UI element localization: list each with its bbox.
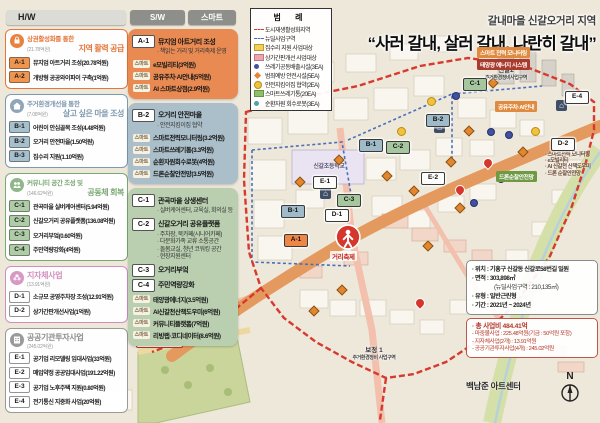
smart-item: 스마트스마트전력모니터링(3.2억원) bbox=[132, 133, 234, 142]
map-callout-2: 드론순찰안전망 bbox=[496, 171, 537, 183]
sw-project-item: C-2신갈오거리 공유플랫폼 bbox=[132, 218, 234, 231]
project-code-chip: B-1 bbox=[9, 121, 30, 133]
legend-item: 도시재생활성화지역 bbox=[254, 25, 328, 34]
dot-yellow-swatch-icon bbox=[254, 81, 265, 89]
section-title: 상권활성화를 통한 bbox=[27, 33, 124, 43]
dot-blue-swatch-icon bbox=[254, 64, 265, 69]
legend-item: 스마트쓰레기통(20EA) bbox=[254, 89, 328, 98]
smart-label: 공유주차·AI안내(5억원) bbox=[153, 72, 211, 81]
project-code-chip: C-4 bbox=[9, 244, 30, 256]
line-red-swatch-icon bbox=[254, 29, 265, 30]
legend-label: 뉴딜사업구역 bbox=[265, 34, 295, 43]
district-name: 보정 1 bbox=[338, 344, 410, 354]
info-line: · 면적 : 303,898㎡ bbox=[472, 274, 592, 283]
smart-label: 순환자원회수로봇(4억원) bbox=[153, 157, 214, 166]
smart-label: 리빙랩·코디네이터(8.6억원) bbox=[153, 331, 221, 340]
legend-item: 쓰레기공동배출시설(3EA) bbox=[254, 62, 328, 71]
smart-note-line: · 드론 순찰안전망 bbox=[545, 171, 591, 177]
section-header: 상권활성화를 통한(21.78억원)지역 활력 공급 bbox=[9, 33, 124, 54]
project-code-chip: E-1 bbox=[9, 352, 30, 364]
section-budget: (13.91억원) bbox=[27, 281, 50, 288]
sw-project-item: A-1뮤지엄 아트거리 조성 bbox=[132, 35, 234, 48]
legend-item: 안전지킴이집 협약(2EA) bbox=[254, 80, 328, 89]
legend-item: 순환자원 회수로봇(3EA) bbox=[254, 99, 328, 108]
community-icon bbox=[10, 178, 24, 192]
smart-item: 스마트커뮤니티플랫폼(7억원) bbox=[132, 319, 234, 328]
project-code-chip: C-3 bbox=[132, 264, 155, 277]
callout-label: 드론순찰안전망 bbox=[496, 171, 537, 182]
legend-label: 범죄예방 안전시설(5EA) bbox=[265, 71, 319, 80]
legend-item: 뉴딜사업구역 bbox=[254, 34, 328, 43]
sub-item: · 다문화가족 교류 소통공간 bbox=[132, 239, 234, 247]
project-code-chip: E-3 bbox=[9, 381, 30, 393]
hw-project-panel: 상권활성화를 통한(21.78억원)지역 활력 공급A-1뮤지엄 아트거리 조성… bbox=[5, 29, 128, 418]
legend-label: 도시재생활성화지역 bbox=[265, 25, 310, 34]
compass-letter: N bbox=[558, 372, 582, 382]
section-title: 지자체사업 bbox=[27, 270, 124, 281]
smart-label: 커뮤니티플랫폼(7억원) bbox=[153, 319, 209, 328]
project-item: C-3오거리부엌(0.60억원) bbox=[9, 229, 124, 241]
smart-label: AI 스마트상점(2.9억원) bbox=[153, 84, 209, 93]
budget-line: - 공공기관투자사업(4개) : 245.02억원 bbox=[472, 346, 592, 354]
section-subtitle: 공동체 회복 bbox=[87, 187, 124, 198]
smart-note-line: · AI 신갈천 산책도우미 bbox=[545, 164, 591, 170]
legend-label: 쓰레기공동배출시설(3EA) bbox=[265, 62, 323, 71]
sub-item: · 돌봄교실, 청년 코워킹 공간 bbox=[132, 247, 234, 255]
project-code-chip: D-1 bbox=[9, 291, 30, 303]
section-title: 주거환경개선을 통한 bbox=[27, 98, 124, 108]
project-label: 전기통신 지중화 사업(20억원) bbox=[33, 397, 101, 406]
section-budget: (21.78억원) bbox=[27, 46, 50, 53]
legend-label: 스마트쓰레기통(20EA) bbox=[265, 89, 316, 98]
smart-tag-chip: 스마트 bbox=[133, 158, 150, 166]
region-title: 갈내마을 신갈오거리 지역 bbox=[306, 13, 596, 28]
smart-tab-button[interactable]: 스마트 bbox=[188, 10, 236, 25]
sw-project-item: C-3오거리부엌 bbox=[132, 264, 234, 277]
fill-pink-swatch-icon bbox=[254, 54, 265, 61]
project-label: 공기업 리모델링 임대사업(33억원) bbox=[33, 354, 111, 363]
house-marker-icon: ⌂ bbox=[320, 188, 331, 199]
map-badge-c-2: C-2 bbox=[386, 141, 410, 154]
title-block: 갈내마을 신갈오거리 지역 “사러 갈내, 살러 갈내, 나란히 갈내” bbox=[306, 13, 596, 54]
smart-tag-chip: 스마트 bbox=[133, 331, 150, 339]
project-label: 개방형 공공와이파이 구축(1억원) bbox=[33, 73, 108, 82]
project-label: 소규모 공영주차장 조성(12.91억원) bbox=[33, 292, 113, 301]
smart-facility-notes: · 스마트전력 모니터링· e모빌리티· AI 신갈천 산책도우미· 드론 순찰… bbox=[545, 152, 591, 177]
smart-label: 태양광에너지(3.5억원) bbox=[153, 295, 208, 304]
smart-label: e모빌리티(3억원) bbox=[153, 60, 196, 69]
project-info-box: · 위치 : 기흥구 신갈동 신갈로58번길 일원· 면적 : 303,898㎡… bbox=[466, 260, 598, 315]
section-title: 커뮤니티 공간 조성 및 bbox=[27, 177, 124, 187]
project-item: C-1관곡마을 실버케어센터(5.94억원) bbox=[9, 200, 124, 212]
hw-section-d: 지자체사업(13.91억원)D-1소규모 공영주차장 조성(12.91억원)D-… bbox=[5, 266, 128, 323]
smart-item: 스마트AI 스마트상점(2.9억원) bbox=[132, 84, 234, 93]
smart-item: 스마트순환자원회수로봇(4억원) bbox=[132, 157, 234, 166]
project-label: 공기업 노후주택 지원(0.80억원) bbox=[33, 383, 105, 392]
budget-info-box: · 총 사업비 484.41억 - 마중물사업 : 225.48억원(기금 : … bbox=[466, 318, 598, 358]
smart-tag-chip: 스마트 bbox=[133, 134, 150, 142]
map-badge-b-2: B-2 bbox=[426, 114, 450, 127]
map-badge-c-3: C-3 bbox=[337, 194, 361, 207]
fill-green-swatch-icon bbox=[254, 90, 265, 97]
project-code-chip: D-2 bbox=[9, 305, 30, 317]
trash-dot-icon bbox=[470, 199, 478, 207]
project-item: E-3공기업 노후주택 지원(0.80억원) bbox=[9, 381, 124, 393]
smart-tag-chip: 스마트 bbox=[133, 60, 150, 68]
project-item: B-2오거리 안전마을(1.50억원) bbox=[9, 136, 124, 148]
project-label: 뮤지엄 아트거리 조성(20.78억원) bbox=[33, 58, 108, 67]
section-header: 커뮤니티 공간 조성 및(146.62억원)공동체 회복 bbox=[9, 177, 124, 198]
keeper-dot-icon bbox=[397, 127, 406, 136]
project-item: D-1소규모 공영주차장 조성(12.91억원) bbox=[9, 291, 124, 303]
info-line: · 위치 : 기흥구 신갈동 신갈로58번길 일원 bbox=[472, 265, 592, 274]
sw-project-panel: A-1뮤지엄 아트거리 조성· 책읽는 거리 및 거리축제 운영스마트e모빌리티… bbox=[128, 29, 238, 350]
project-item: A-1뮤지엄 아트거리 조성(20.78억원) bbox=[9, 57, 124, 69]
smart-tag-chip: 스마트 bbox=[133, 319, 150, 327]
project-code-chip: C-2 bbox=[132, 218, 155, 231]
sub-item: · 책읽는 거리 및 거리축제 운영 bbox=[132, 49, 234, 57]
legend-item: 범죄예방 안전시설(5EA) bbox=[254, 71, 328, 80]
smart-tag-chip: 스마트 bbox=[133, 295, 150, 303]
flower-icon bbox=[10, 271, 24, 285]
project-item: C-2신갈오거리 공유플랫폼(136.08억원) bbox=[9, 215, 124, 227]
project-label: 오거리부엌(0.60억원) bbox=[33, 231, 82, 240]
section-budget: (245.02억원) bbox=[27, 343, 53, 350]
project-item: B-1어린이 안심골목 조성(4.48억원) bbox=[9, 121, 124, 133]
project-item: B-3집수리 지원(1.10억원) bbox=[9, 150, 124, 162]
project-code-chip: C-2 bbox=[9, 215, 30, 227]
project-label: 뮤지엄 아트거리 조성 bbox=[158, 37, 215, 47]
budget-line: - 마중물사업 : 225.48억원(기금 : 50억원 포함) bbox=[472, 331, 592, 339]
smart-item: 스마트e모빌리티(3억원) bbox=[132, 60, 234, 69]
slogan-title: “사러 갈내, 살러 갈내, 나란히 갈내” bbox=[306, 30, 596, 54]
legend-title: 범 례 bbox=[254, 12, 328, 23]
district-label-1: 보정 1주거환경정비 사업구역 bbox=[338, 344, 410, 361]
street-festival-label: 거리축제 bbox=[330, 251, 357, 261]
line-blue-swatch-icon bbox=[254, 38, 265, 39]
smart-item: 스마트공유주차·AI안내(5억원) bbox=[132, 72, 234, 81]
urban-regeneration-plan-map: H/W S/W 스마트 상권활성화를 통한(21.78억원)지역 활력 공급A-… bbox=[0, 0, 600, 423]
project-code-chip: A-1 bbox=[132, 35, 155, 48]
legend-label: 안전지킴이집 협약(2EA) bbox=[265, 80, 319, 89]
house-icon bbox=[10, 99, 24, 113]
smart-label: 스마트전력모니터링(3.2억원) bbox=[153, 133, 224, 142]
legend-label: 상가간판개선 사업대상 bbox=[265, 53, 316, 62]
project-label: 오거리 안전마을(1.50억원) bbox=[33, 137, 94, 146]
legend-label: 집수리 지원 사업대상 bbox=[265, 43, 313, 52]
district-type: 주거환경정비 사업구역 bbox=[338, 354, 410, 361]
smart-label: AI신갈천산책도우미(6억원) bbox=[153, 307, 220, 316]
info-line: · 유형 : 일반근린형 bbox=[472, 292, 592, 301]
section-header: 주거환경개선을 통한(7.08억원)살고 싶은 마을 조성 bbox=[9, 98, 124, 119]
hw-section-b: 주거환경개선을 통한(7.08억원)살고 싶은 마을 조성B-1어린이 안심골목… bbox=[5, 94, 128, 168]
dot-teal-swatch-icon bbox=[254, 101, 265, 106]
project-code-chip: E-2 bbox=[9, 367, 30, 379]
map-callout-1: 공유주차·AI안내 bbox=[495, 101, 537, 113]
section-subtitle: 살고 싶은 마을 조성 bbox=[63, 108, 124, 119]
sub-item: · 현장지원센터 bbox=[132, 254, 234, 262]
map-badge-b-1: B-1 bbox=[359, 139, 383, 152]
project-label: 신갈오거리 공유플랫폼 bbox=[158, 219, 220, 229]
project-item: D-2상가간판개선사업(1억원) bbox=[9, 305, 124, 317]
section-title: 공공기관투자사업 bbox=[27, 332, 124, 343]
smart-item: 스마트드론순찰안전망(3.5억원) bbox=[132, 169, 234, 178]
map-callout-0: 스마트 전력 모니터링태양광 에너지 시스템 bbox=[477, 47, 530, 71]
project-code-chip: C-1 bbox=[132, 194, 155, 207]
legend-item: 상가간판개선 사업대상 bbox=[254, 53, 328, 62]
project-label: 어린이 안심골목 조성(4.48억원) bbox=[33, 123, 105, 132]
sw-box-c: C-1관곡마을 상생센터· 실버케어센터, 교육실, 회의실 등C-2신갈오거리… bbox=[128, 188, 238, 346]
map-badge-b-1: B-1 bbox=[281, 205, 305, 218]
project-label: 오거리 안전마을 bbox=[158, 110, 202, 120]
smart-tag-chip: 스마트 bbox=[133, 307, 150, 315]
project-code-chip: C-3 bbox=[9, 229, 30, 241]
project-code-chip: B-3 bbox=[9, 150, 30, 162]
sw-box-b: B-2오거리 안전마을· 안전지킴이집 협약스마트스마트전력모니터링(3.2억원… bbox=[128, 103, 238, 185]
project-code-chip: C-4 bbox=[132, 279, 155, 292]
hw-section-c: 커뮤니티 공간 조성 및(146.62억원)공동체 회복C-1관곡마을 실버케어… bbox=[5, 173, 128, 262]
section-header: 지자체사업(13.91억원) bbox=[9, 270, 124, 288]
section-budget: (146.62억원) bbox=[27, 190, 53, 197]
school-label: 신갈초등학교 bbox=[294, 161, 364, 170]
sub-item: · 주차장, 북카페(시니어카페) bbox=[132, 232, 234, 240]
sw-project-item: B-2오거리 안전마을 bbox=[132, 109, 234, 122]
project-code-chip: B-2 bbox=[132, 109, 155, 122]
map-badge-d-1: D-1 bbox=[325, 209, 349, 222]
map-badge-c-1: C-1 bbox=[463, 78, 487, 91]
section-header: 공공기관투자사업(245.02억원) bbox=[9, 332, 124, 350]
section-budget: (7.08억원) bbox=[27, 111, 48, 118]
project-item: A-2개방형 공공와이파이 구축(1억원) bbox=[9, 71, 124, 83]
project-code-chip: C-1 bbox=[9, 200, 30, 212]
smart-tag-chip: 스마트 bbox=[133, 72, 150, 80]
sw-tab-button[interactable]: S/W bbox=[130, 10, 185, 25]
project-label: 관곡마을 실버케어센터(5.94억원) bbox=[33, 202, 109, 211]
total-budget-title: · 총 사업비 484.41억 bbox=[472, 322, 592, 331]
art-center-label: 백남준 아트센터 bbox=[466, 380, 521, 392]
project-label: 집수리 지원(1.10억원) bbox=[33, 152, 83, 161]
project-code-chip: A-1 bbox=[9, 57, 30, 69]
project-label: 관곡마을 상생센터 bbox=[158, 196, 208, 206]
section-subtitle: 지역 활력 공급 bbox=[79, 43, 124, 54]
project-label: 오거리부엌 bbox=[158, 265, 188, 275]
project-item: E-1공기업 리모델링 임대사업(33억원) bbox=[9, 352, 124, 364]
keeper-dot-icon bbox=[531, 127, 540, 136]
legend-label: 순환자원 회수로봇(3EA) bbox=[265, 99, 319, 108]
project-item: E-2매입약정 공공임대사업(191.22억원) bbox=[9, 367, 124, 379]
sub-item: · 실버케어센터, 교육실, 회의실 등 bbox=[132, 208, 234, 216]
smart-item: 스마트AI신갈천산책도우미(6억원) bbox=[132, 307, 234, 316]
project-item: E-4전기통신 지중화 사업(20억원) bbox=[9, 396, 124, 408]
sw-box-a: A-1뮤지엄 아트거리 조성· 책읽는 거리 및 거리축제 운영스마트e모빌리티… bbox=[128, 29, 238, 99]
smart-item: 스마트스마트쓰레기통(3.3억원) bbox=[132, 145, 234, 154]
trash-dot-icon bbox=[487, 128, 495, 136]
sub-item: · 안전지킴이집 협약 bbox=[132, 123, 234, 131]
project-code-chip: B-2 bbox=[9, 136, 30, 148]
compass-north-icon: N bbox=[558, 372, 582, 409]
project-label: 주민역량강화 bbox=[158, 280, 194, 290]
map-badge-d-2: D-2 bbox=[551, 138, 575, 151]
map-badge-e-2: E-2 bbox=[421, 172, 445, 185]
legend-box: 범 례 도시재생활성화지역뉴딜사업구역집수리 지원 사업대상상가간판개선 사업대… bbox=[250, 8, 332, 111]
project-code-chip: E-4 bbox=[9, 396, 30, 408]
shopping-bag-icon bbox=[10, 34, 24, 48]
diamond-swatch-icon bbox=[254, 73, 265, 78]
hw-tab-button[interactable]: H/W bbox=[6, 10, 126, 25]
hw-section-e: 공공기관투자사업(245.02억원)E-1공기업 리모델링 임대사업(33억원)… bbox=[5, 328, 128, 414]
hw-section-a: 상권활성화를 통한(21.78억원)지역 활력 공급A-1뮤지엄 아트거리 조성… bbox=[5, 29, 128, 89]
trash-dot-icon bbox=[452, 92, 460, 100]
keeper-dot-icon bbox=[427, 97, 436, 106]
project-code-chip: A-2 bbox=[9, 71, 30, 83]
callout-label: 스마트 전력 모니터링 bbox=[477, 47, 530, 58]
map-badge-e-4: E-4 bbox=[565, 91, 589, 104]
info-line: · 기간 : 2021년 ~ 2024년 bbox=[472, 301, 592, 310]
map-badge-a-1: A-1 bbox=[284, 234, 308, 247]
smart-item: 스마트태양광에너지(3.5억원) bbox=[132, 295, 234, 304]
smart-label: 스마트쓰레기통(3.3억원) bbox=[153, 145, 213, 154]
project-label: 상가간판개선사업(1억원) bbox=[33, 307, 90, 316]
fill-yellow-swatch-icon bbox=[254, 44, 265, 51]
smart-tag-chip: 스마트 bbox=[133, 84, 150, 92]
project-label: 매입약정 공공임대사업(191.22억원) bbox=[33, 368, 115, 377]
info-line: (뉴딜사업구역 : 210,135㎡) bbox=[472, 283, 592, 292]
project-item: C-4주민역량강화(4억원) bbox=[9, 244, 124, 256]
map-badge-e-1: E-1 bbox=[313, 176, 337, 189]
public-building-icon bbox=[10, 333, 24, 347]
smart-label: 드론순찰안전망(3.5억원) bbox=[153, 169, 213, 178]
smart-item: 스마트리빙랩·코디네이터(8.6억원) bbox=[132, 331, 234, 340]
sw-project-item: C-4주민역량강화 bbox=[132, 279, 234, 292]
callout-label: 태양광 에너지 시스템 bbox=[477, 59, 530, 70]
legend-item: 집수리 지원 사업대상 bbox=[254, 43, 328, 52]
trash-dot-icon bbox=[505, 131, 513, 139]
callout-label: 공유주차·AI안내 bbox=[495, 101, 537, 112]
project-label: 신갈오거리 공유플랫폼(136.08억원) bbox=[33, 216, 115, 225]
project-label: 주민역량강화(4억원) bbox=[33, 245, 80, 254]
smart-tag-chip: 스마트 bbox=[133, 170, 150, 178]
sw-project-item: C-1관곡마을 상생센터 bbox=[132, 194, 234, 207]
smart-tag-chip: 스마트 bbox=[133, 146, 150, 154]
